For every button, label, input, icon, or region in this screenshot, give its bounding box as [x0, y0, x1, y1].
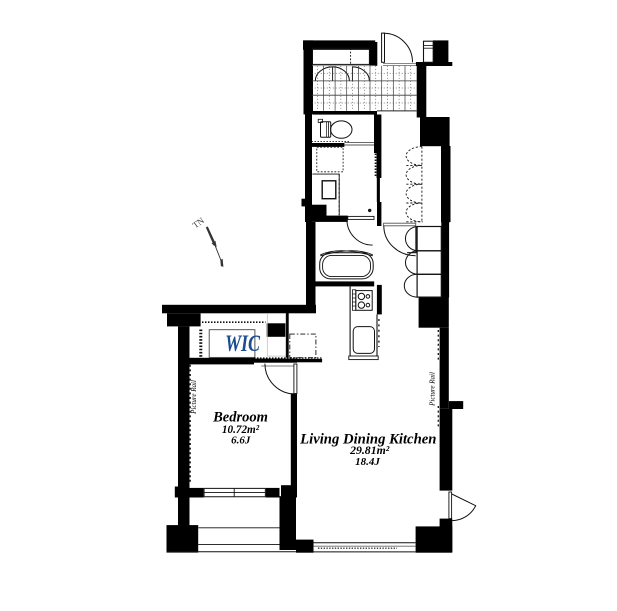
svg-text:Picture Rail: Picture Rail	[190, 380, 198, 415]
svg-text:29.81m²: 29.81m²	[349, 443, 390, 457]
svg-text:18.4J: 18.4J	[355, 456, 380, 468]
svg-text:6.6J: 6.6J	[231, 435, 251, 447]
svg-text:Picture Rail: Picture Rail	[429, 372, 437, 407]
svg-text:WIC: WIC	[225, 332, 260, 357]
